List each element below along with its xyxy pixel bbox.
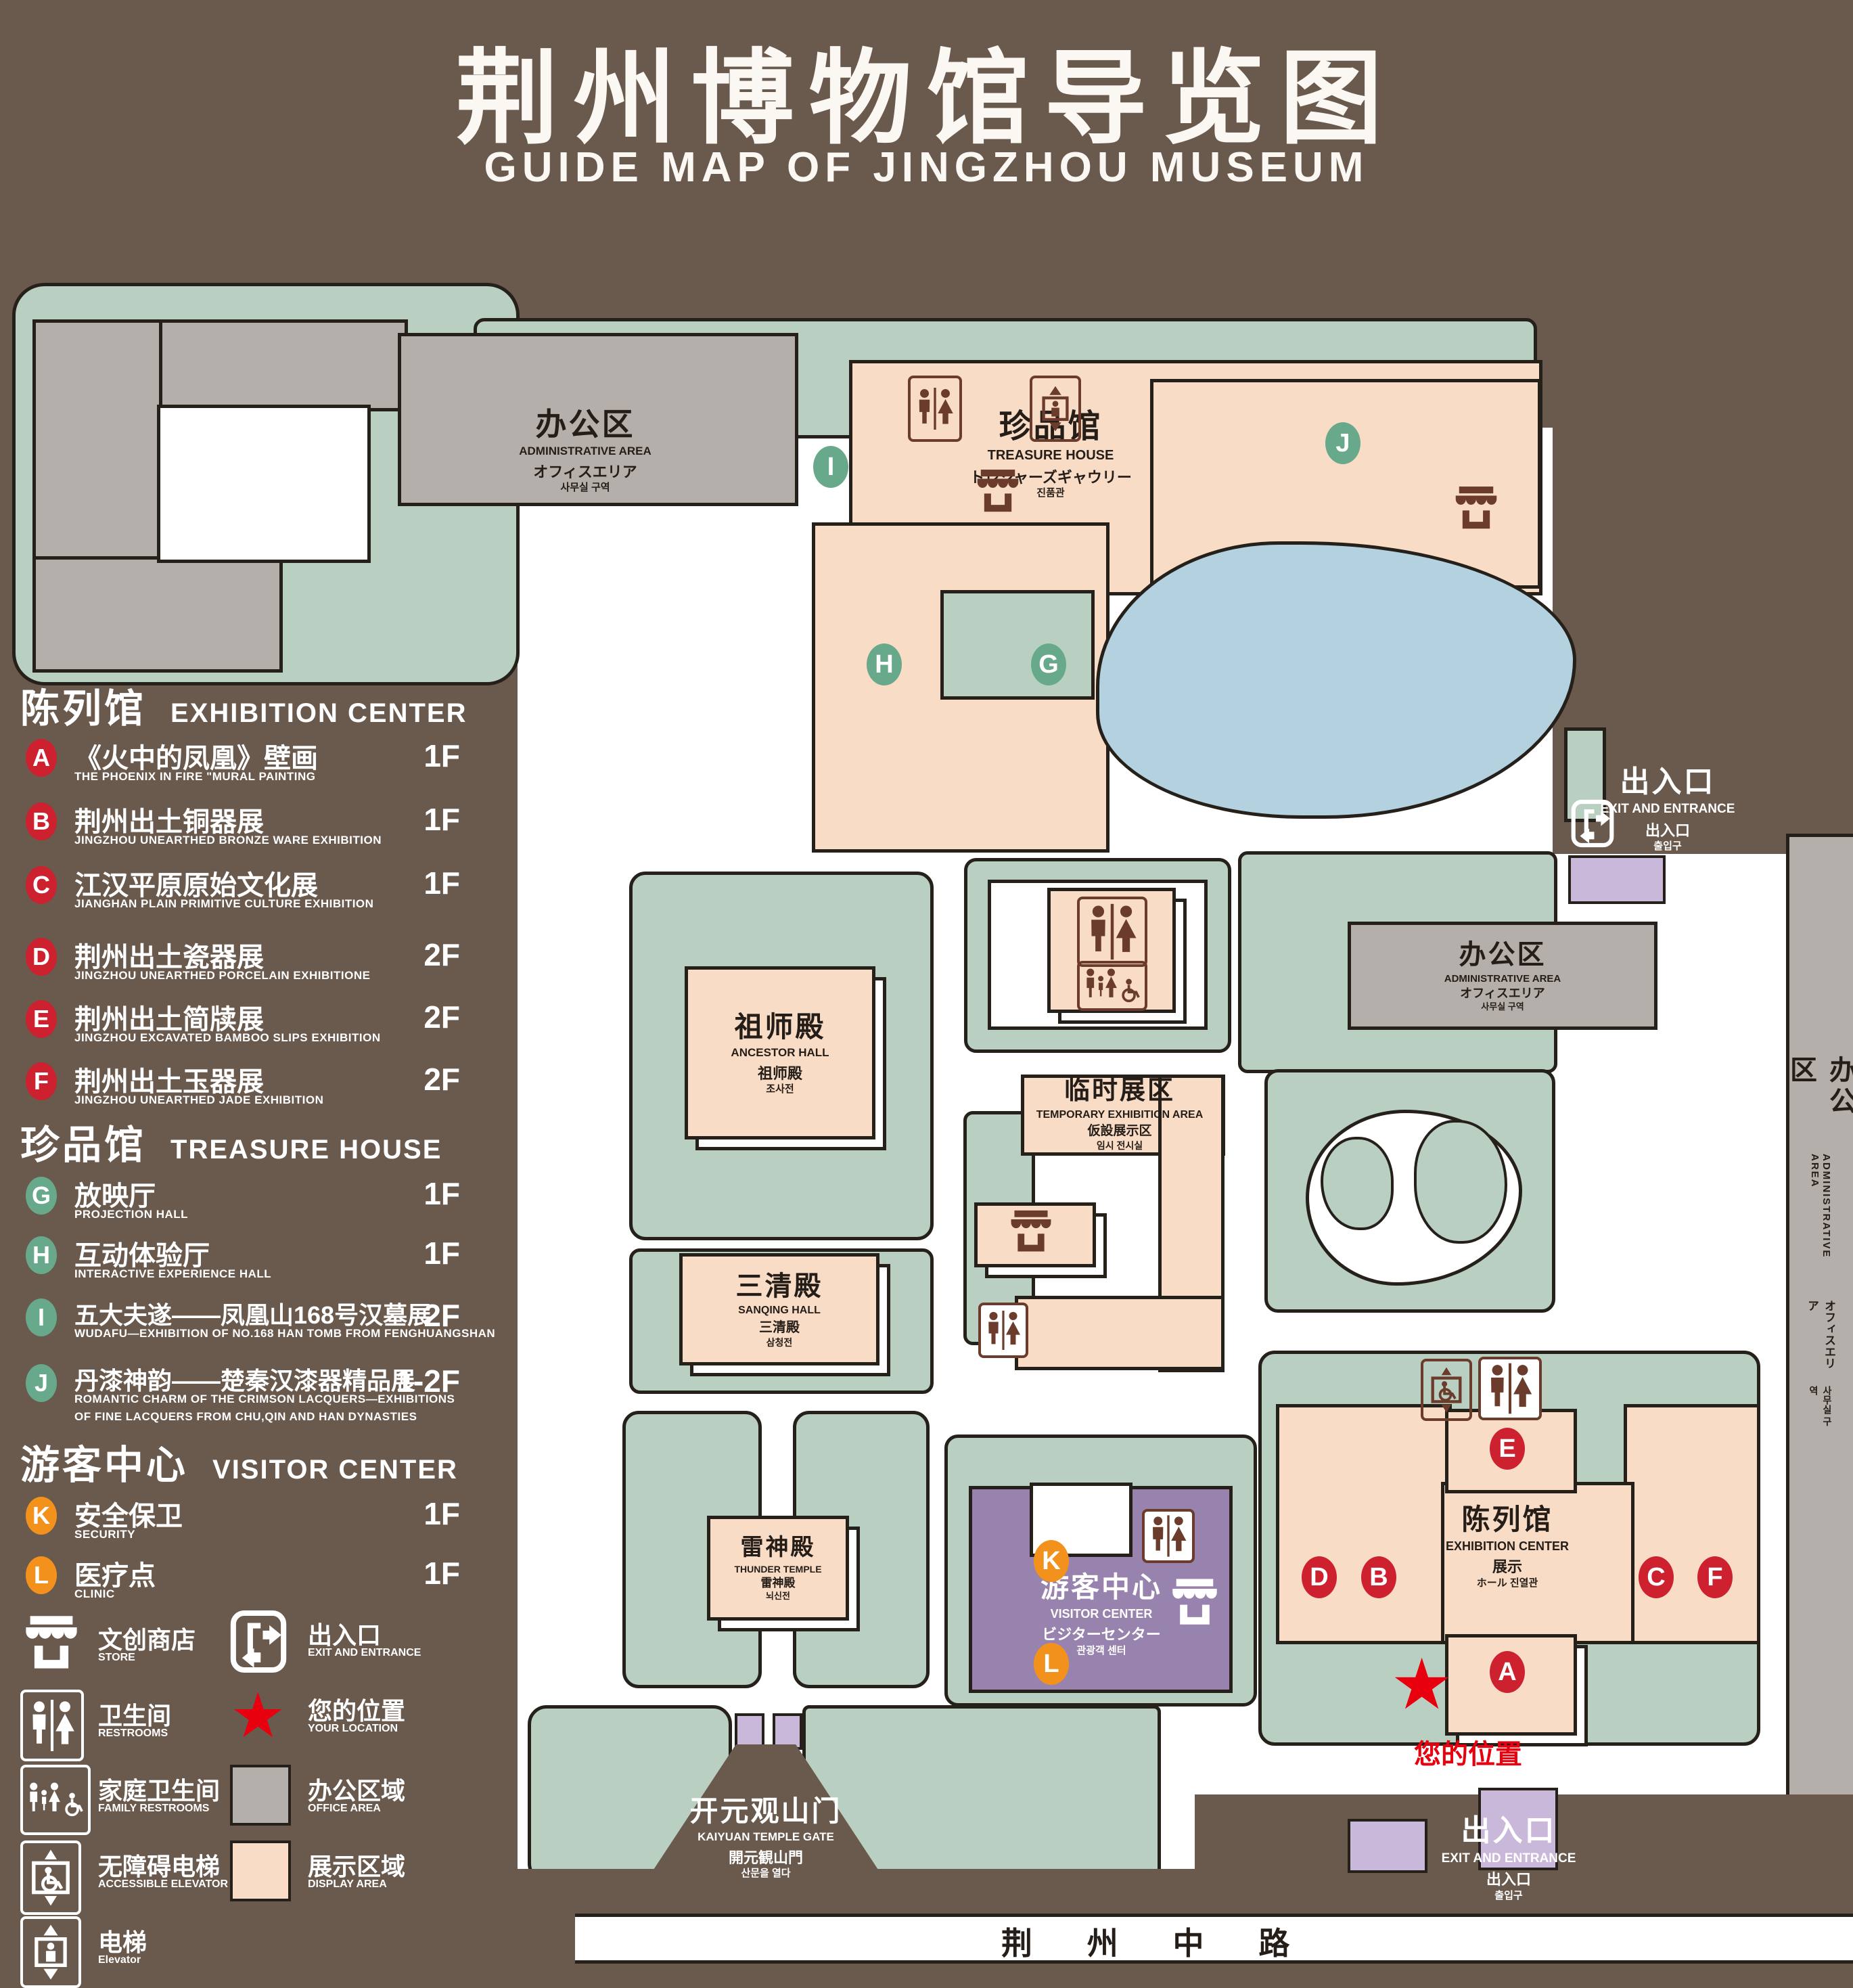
map-marker-B: B (1361, 1556, 1396, 1598)
admin-right-building: 办公区 ADMINISTRATIVE AREA オフィスエリア 사무실 구역 (1348, 922, 1657, 1030)
legend-item-D: D 荆州出土瓷器展 JINGZHOU UNEARTHED PORCELAIN E… (20, 935, 494, 996)
thunder-temple-building: 雷神殿 THUNDER TEMPLE 雷神殿 뇌신전 (707, 1516, 849, 1621)
store-icon (20, 1614, 83, 1672)
legend-section-exhibition: 陈列馆EXHIBITION CENTER (20, 677, 467, 733)
sanqing-hall-building: 三清殿 SANQING HALL 三清殿 삼청전 (679, 1253, 879, 1365)
legend-item-H: H 互动体验厅 INTERACTIVE EXPERIENCE HALL 1F (20, 1234, 494, 1294)
exit-icon (230, 1609, 287, 1674)
map-marker-C: C (1639, 1556, 1674, 1598)
restroom-icon (908, 376, 962, 442)
restroom-icon (978, 1303, 1028, 1358)
page-title: 荆州博物馆导览图 (0, 15, 1853, 164)
legend-item-K: K 安全保卫 SECURITY 1F (20, 1494, 494, 1555)
legend-item-E: E 荆州出土简牍展 JINGZHOU EXCAVATED BAMBOO SLIP… (20, 997, 494, 1058)
map-marker-D: D (1302, 1556, 1337, 1598)
legend-symbol-accessible-elevator: 无障碍电梯ACCESSIBLE ELEVATOR (20, 1840, 81, 1915)
map-marker-E: E (1490, 1428, 1525, 1470)
legend-item-C: C 江汉平原原始文化展 JIANGHAN PLAIN PRIMITIVE CUL… (20, 863, 494, 924)
map-marker-A: A (1490, 1651, 1525, 1693)
exit-icon (1571, 798, 1614, 849)
accessible-elevator-icon (20, 1840, 81, 1915)
legend-symbol-display-area: 展示区域DISPLAY AREA (230, 1840, 291, 1901)
family-restroom-icon (20, 1765, 91, 1835)
legend-symbol-exit: 出入口EXIT AND ENTRANCE (230, 1609, 287, 1674)
legend-section-visitor: 游客中心VISITOR CENTER (20, 1433, 458, 1490)
legend-item-L: L 医疗点 CLINIC 1F (20, 1554, 494, 1614)
legend-item-A: A 《火中的凤凰》壁画 THE PHOENIX IN FIRE "MURAL P… (20, 736, 494, 797)
legend-section-treasure: 珍品馆TREASURE HOUSE (20, 1113, 442, 1170)
legend-symbol-location: ★ 您的位置YOUR LOCATION (230, 1685, 285, 1747)
elevator-icon (20, 1916, 81, 1988)
exit-bottom-right-label: 出入口 EXIT AND ENTRANCE 出入口 출입구 (1407, 1805, 1610, 1910)
store-icon (1168, 1577, 1222, 1628)
legend-item-G: G 放映厅 PROJECTION HALL 1F (20, 1174, 494, 1235)
map-marker-K: K (1034, 1540, 1069, 1582)
treasure-lawn-patch (940, 590, 1095, 700)
kaiyuan-gate-label: 开元观山门 KAIYUAN TEMPLE GATE 開元観山門 산문을 열다 (664, 1773, 867, 1901)
legend-item-I: I 五大夫遂——凤凰山168号汉墓展 WUDAFU—EXHIBITION OF … (20, 1296, 494, 1357)
elevator-icon (1030, 376, 1081, 442)
gate-pillar (773, 1713, 802, 1750)
admin-top-left-building (32, 556, 283, 673)
admin-far-right-label: 办公区 ADMINISTRATIVE AREA オフィスエリア 사무실 구역 (1791, 1056, 1850, 1434)
family-restroom-icon (1077, 961, 1147, 1011)
store-icon (1007, 1208, 1055, 1255)
location-star-icon: ★ (1390, 1643, 1453, 1725)
ancestor-hall-building: 祖师殿 ANCESTOR HALL 祖师殿 조사전 (685, 966, 875, 1139)
map-marker-L: L (1034, 1643, 1069, 1685)
legend-item-J: J 丹漆神韵——楚秦汉漆器精品展 ROMANTIC CHARM OF THE C… (20, 1361, 494, 1443)
garden-islet-left (1321, 1137, 1394, 1230)
restroom-icon (1142, 1509, 1195, 1563)
legend-symbol-store: 文创商店STORE (20, 1614, 83, 1672)
legend-symbol-family-restroom: 家庭卫生间FAMILY RESTROOMS (20, 1765, 91, 1835)
location-star-icon: ★ (230, 1685, 285, 1747)
restroom-icon (1077, 897, 1147, 967)
map-marker-G: G (1031, 643, 1066, 685)
legend-symbol-restroom: 卫生间RESTROOMS (20, 1690, 84, 1761)
road-name: 荆 州 中 路 (1001, 1919, 1312, 1964)
restroom-icon (1478, 1357, 1542, 1420)
accessible-elevator-icon (1421, 1359, 1472, 1421)
gate-pillar (735, 1713, 764, 1750)
store-icon (1451, 484, 1501, 533)
map-marker-H: H (867, 643, 902, 685)
map-marker-J: J (1325, 422, 1360, 464)
legend-symbol-elevator: 电梯Elevator (20, 1916, 81, 1988)
store-icon (973, 467, 1023, 516)
restroom-icon (20, 1690, 84, 1761)
temporary-exhibition-building (1015, 1296, 1225, 1370)
legend-symbol-office-area: 办公区域OFFICE AREA (230, 1765, 291, 1826)
map-marker-I: I (813, 446, 848, 488)
legend-item-F: F 荆州出土玉器展 JINGZHOU UNEARTHED JADE EXHIBI… (20, 1060, 494, 1121)
entrance-pad (1568, 855, 1666, 904)
page-subtitle: GUIDE MAP OF JINGZHOU MUSEUM (0, 143, 1853, 191)
office-area-chip (230, 1765, 291, 1826)
display-area-chip (230, 1840, 291, 1901)
your-location-label: 您的位置 (1373, 1732, 1563, 1771)
exhibition-center-label: 陈列馆 EXHIBITION CENTER 展示 ホール 진열관 (1406, 1492, 1609, 1600)
admin-courtyard (157, 405, 371, 563)
exhibition-center-building (1624, 1404, 1760, 1644)
temporary-exhibition-label: 临时展区 TEMPORARY EXHIBITION AREA 仮設展示区 임시 … (1001, 1077, 1238, 1150)
admin-top-left-label: 办公区 ADMINISTRATIVE AREA オフィスエリア 사무실 구역 (433, 399, 737, 501)
legend-item-B: B 荆州出土铜器展 JINGZHOU UNEARTHED BRONZE WARE… (20, 800, 494, 861)
map-marker-F: F (1697, 1556, 1733, 1598)
